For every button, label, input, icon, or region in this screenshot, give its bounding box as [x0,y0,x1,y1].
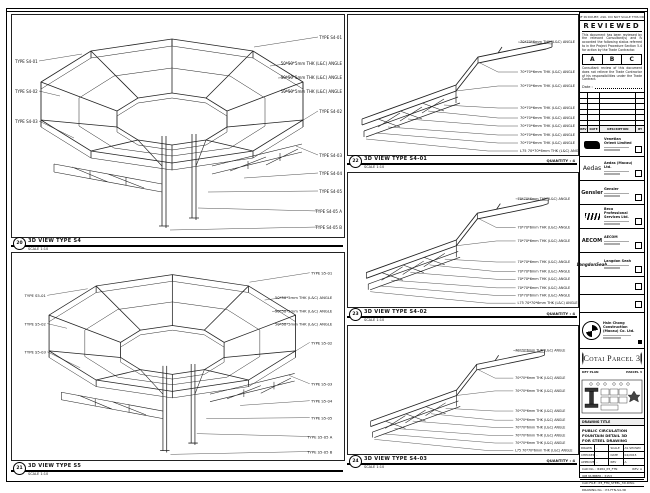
aecom-logo: AECOM [582,238,602,244]
status-option-b: B [603,55,623,64]
description-col-header: DESCRIPTION [600,126,636,132]
member-label: TYPE S4-05 A [314,209,342,214]
gensler-logo: Gensler [582,190,602,196]
member-label: 70*70*6mm THK (L&C) ANGLE [515,418,565,422]
member-label: L75 70*70*6mm THK (L&C) ANGLE [518,301,578,305]
beam-segment-drawing: 70*70*6mm THK (L&C) ANGLE 70*70*6mm THK … [348,173,578,307]
member-label: 70*70*6mm THK (L&C) ANGLE [520,84,576,88]
revision-table: REV DATE DESCRIPTION BY [580,93,644,133]
reviewed-heading: REVIEWED [582,22,642,32]
approval-checkbox [635,301,642,308]
member-label: TYPE S4-05 [318,189,342,194]
member-label: TYPE S4-01 [14,59,38,64]
address-line [604,173,620,175]
member-label: L75 70*70*6mm THK (L&C) ANGLE [515,448,572,452]
member-label: 70*70*6mm THK (L&C) ANGLE [520,141,576,145]
view-scale-text: SCALE 1:10 [364,165,384,169]
project-banner: Cotai Parcel 3 [580,349,644,369]
consultant-name: Aedas (Macau) Ltd. [604,162,633,170]
drawing-sheet: TYPE S4-01 TYPE S4-02 TYPE S4-03 TYPE S4… [6,8,648,482]
status-option-c: C [622,55,641,64]
member-label: TYPE S5-01 [310,272,333,276]
view-title-s4-02: 23 3D VIEW TYPE S4-02 SCALE 1:10 QUANTIT… [347,308,577,321]
drawing-number: DRAWING No. : P3-FTN-S4-3D [582,488,626,492]
consultant-row-empty [580,295,644,313]
key-plan: KEY PLAN PARCEL 3 [580,369,644,419]
member-label: TYPE S4-02 [318,109,342,114]
view-scale-text: SCALE 1:10 [28,472,48,476]
member-label: 70*70*6mm THK (L&C) ANGLE [515,376,565,380]
date-line [595,84,642,89]
member-label: TYPE S5-05 B [306,450,332,454]
address-line [604,193,629,195]
member-label: TYPE S5-02 [310,341,333,345]
umbrella-structure-drawing: TYPE S5-01 TYPE S5-02 TYPE S5-03 TYPE S5… [12,253,344,460]
view-scale-text: SCALE 1:10 [364,465,384,469]
member-label: 50*50*5mm THK (L&C) ANGLE [275,309,333,313]
drawing-title: PUBLIC CIRCULATION FOUNTAIN DETAIL 3D FO… [580,426,644,445]
rev-col-header: REV [580,126,588,132]
consultant-row-venetian: Venetian Orient Limited [580,133,644,157]
member-label: 50*50*5mm THK (L&C) ANGLE [281,75,343,80]
view-scale-text: SCALE 1:10 [364,318,384,322]
member-label: 70*70*6mm THK (L&C) ANGLE [518,293,571,297]
drawn-value: - [595,445,609,452]
review-status-options: A B C [582,54,642,65]
consultant-name: Langdon Seah [604,260,633,264]
beam-segment-drawing: 70*70*6mm THK (L&C) ANGLE 70*70*6mm THK … [348,15,578,155]
consultant-name: AECOM [604,236,633,240]
date-value: 04/2015 [624,452,644,459]
member-label: 70*70*6mm THK (L&C) ANGLE [520,106,576,110]
review-paragraph-2: Consultant review of this document does … [582,67,642,82]
consultant-row-aecom: AECOM AECOM [580,229,644,253]
approval-checkbox [635,170,642,177]
date-label: DATE [609,452,623,459]
approved-value: - [595,459,609,466]
banner-ornament-icon [582,352,584,365]
key-plan-area: PARCEL 3 [626,370,642,374]
member-label: 70*70*6mm THK (L&C) ANGLE [515,425,565,429]
member-label: 70*70*6mm THK (L&C) ANGLE [518,286,571,290]
umbrella-structure-drawing: TYPE S4-01 TYPE S4-02 TYPE S4-03 TYPE S4… [12,15,344,237]
view-panel-s5: TYPE S5-01 TYPE S5-02 TYPE S5-03 TYPE S5… [11,252,345,461]
member-label: 70*70*6mm THK (L&C) ANGLE [515,409,565,413]
member-label: TYPE S4-03 [14,119,38,124]
title-block-strip: IF IN DOUBT, ASK. DO NOT SCALE THIS DRAW… [579,12,645,478]
stamp-square [638,340,642,344]
address-line [604,195,620,197]
address-line [604,243,620,245]
view-title-text: 3D VIEW TYPE S5 [28,463,81,469]
fountain-marker [628,391,640,402]
rev-note: REV. A [632,467,642,471]
member-label: 50*50*5mm THK (L&C) ANGLE [281,61,343,66]
address-line [604,223,620,225]
venetian-logo [584,141,600,149]
quantity-note: QUANTITY : 4 [547,158,575,163]
member-label: TYPE S5-03 [310,383,333,387]
address-line [603,337,621,339]
member-label: 70*70*6mm THK (L&C) ANGLE [518,277,571,281]
member-label: 70*70*6mm THK (L&C) ANGLE [518,197,571,201]
member-label: 70*70*6mm THK (L&C) ANGLE [520,116,576,120]
approval-checkbox [635,266,642,273]
member-label: 70*70*6mm THK (L&C) ANGLE [520,133,576,137]
member-label: 70*70*6mm THK (L&C) ANGLE [518,239,571,243]
project-name: Cotai Parcel 3 [584,354,641,363]
detail-bubble: 22 [349,155,362,168]
address-line [604,221,629,223]
view-panel-s4-02: 70*70*6mm THK (L&C) ANGLE 70*70*6mm THK … [347,172,579,308]
view-panel-s4: TYPE S4-01 TYPE S4-02 TYPE S4-03 TYPE S4… [11,14,345,238]
view-scale-text: SCALE 1:10 [28,247,48,251]
address-line [604,267,620,269]
member-label: TYPE S4-01 [318,35,342,40]
aedas-logo: Aedas [582,165,602,172]
member-label: 70*70*6mm THK (L&C) ANGLE [518,226,571,230]
hsin-chong-logo [582,321,601,340]
approval-checkbox [635,194,642,201]
beca-logo [585,213,600,220]
sheet-top-note: IF IN DOUBT, ASK. DO NOT SCALE THIS DRAW… [580,13,644,21]
view-panel-s4-01: 70*70*6mm THK (L&C) ANGLE 70*70*6mm THK … [347,14,579,156]
rev-value: A [624,459,644,466]
contractor-block: Hsin Chong Construction (Macau) Co. Ltd. [580,313,644,349]
approval-checkbox [635,242,642,249]
member-label: TYPE S5-05 A [306,435,332,439]
title-underline [11,245,343,247]
consultant-row-empty [580,277,644,295]
member-label: 70*70*6mm THK (L&C) ANGLE [520,40,576,44]
review-paragraph-1: This document has been reviewed by the r… [582,34,642,53]
langdonseah-logo: LangdonSeah [582,262,602,267]
beam-segment-drawing: 70*70*6mm THK (L&C) ANGLE 70*70*6mm THK … [348,326,578,454]
member-label: TYPE S4-04 [318,171,342,176]
address-line [604,265,629,267]
consultant-row-gensler: Gensler Gensler [580,181,644,205]
address-line [604,241,629,243]
job-number: JOB NUMBER : 3153 [582,474,612,478]
member-label: 50*50*5mm THK (L&C) ANGLE [275,296,333,300]
view-title-s4-03: 24 3D VIEW TYPE S4-03 SCALE 1:10 QUANTIT… [347,455,577,468]
banner-ornament-icon [640,352,642,365]
contractor-name: Hsin Chong Construction (Macau) Co. Ltd. [603,322,636,334]
consultant-name: Beca Professional Services Ltd. [604,208,633,220]
drawn-label: DRAWN [580,445,595,452]
date-label: Date : [582,85,593,89]
drawing-title-label: DRAWING TITLE [580,419,644,426]
consultant-name: Gensler [604,188,633,192]
by-col-header: BY [636,126,644,132]
consultant-row-beca: Beca Professional Services Ltd. [580,205,644,229]
view-title-s5: 21 3D VIEW TYPE S5 SCALE 1:10 [11,462,343,475]
approval-checkbox [635,218,642,225]
member-label: 70*70*6mm THK (L&C) ANGLE [515,441,565,445]
key-plan-label: KEY PLAN [582,370,599,374]
address-line [604,171,629,173]
status-option-a: A [583,55,603,64]
view-title-text: 3D VIEW TYPE S4-02 [364,309,427,315]
quantity-note: QUANTITY : 4 [547,311,575,316]
date-col-header: DATE [588,126,601,132]
key-plan-map [581,374,643,416]
member-label: TYPE S5-01 [24,294,47,298]
detail-bubble: 23 [349,308,362,321]
member-label: TYPE S5-04 [310,400,333,404]
member-label: 70*70*6mm THK (L&C) ANGLE [520,70,576,74]
address-line [604,149,620,151]
view-title-text: 3D VIEW TYPE S4-03 [364,456,427,462]
drawing-title-block: DRAWING TITLE PUBLIC CIRCULATION FOUNTAI… [580,419,644,493]
rev-label: REV [609,459,623,466]
view-title-s4-01: 22 3D VIEW TYPE S4-01 SCALE 1:10 QUANTIT… [347,155,577,168]
member-label: TYPE S5-05 [310,417,333,421]
title-underline [11,470,343,472]
member-label: 70*70*6mm THK (L&C) ANGLE [515,389,565,393]
address-line [603,335,631,337]
quantity-note: QUANTITY : 4 [547,458,575,463]
member-label: TYPE S5-03 [24,351,47,355]
member-label: 50*50*5mm THK (L&C) ANGLE [281,89,343,94]
view-panel-s4-03: 70*70*6mm THK (L&C) ANGLE 70*70*6mm THK … [347,325,579,455]
cad-file: CAD FILE : P3_FTN_STEEL_3D.DWG [582,481,634,485]
consultant-row-aedas: Aedas Aedas (Macau) Ltd. [580,157,644,181]
member-label: 70*70*6mm THK (L&C) ANGLE [520,124,576,128]
approval-checkbox [635,283,642,290]
scale-label: SCALE [609,445,623,452]
approval-checkbox [635,146,642,153]
approved-label: APPROVED [580,459,595,466]
address-line [604,147,629,149]
member-label: 70*70*6mm THK (L&C) ANGLE [515,349,565,353]
detail-bubble: 24 [349,455,362,468]
drawing-title-line: FOR STEEL DRAWING [582,438,642,443]
member-label: 70*70*6mm THK (L&C) ANGLE [518,270,571,274]
cad-number: CAD No. : 8484_P3_FTN [582,467,617,471]
member-label: TYPE S4-05 B [314,225,342,230]
member-label: TYPE S4-02 [14,89,38,94]
view-title-text: 3D VIEW TYPE S4 [28,238,81,244]
detail-bubble: 20 [13,237,26,250]
checked-value: - [595,452,609,459]
member-label: 70*70*6mm THK (L&C) ANGLE [518,260,571,264]
consultant-row-langdonseah: LangdonSeah Langdon Seah [580,253,644,277]
member-label: TYPE S4-03 [318,153,342,158]
member-label: L75 70*70*6mm THK (L&C) ANGLE [520,149,578,153]
member-label: 70*70*6mm THK (L&C) ANGLE [515,434,565,438]
review-stamp: REVIEWED This document has been reviewed… [580,21,644,93]
view-title-text: 3D VIEW TYPE S4-01 [364,156,427,162]
consultant-name: Venetian Orient Limited [604,138,633,146]
member-label: TYPE S5-02 [24,322,47,326]
scale-value: AS SHOWN [624,445,644,452]
member-label: 50*50*5mm THK (L&C) ANGLE [275,322,333,326]
signoff-grid: DRAWN - SCALE AS SHOWN CHECKED - DATE 04… [580,445,644,466]
view-title-s4: 20 3D VIEW TYPE S4 SCALE 1:10 [11,237,343,250]
detail-bubble: 21 [13,462,26,475]
checked-label: CHECKED [580,452,595,459]
